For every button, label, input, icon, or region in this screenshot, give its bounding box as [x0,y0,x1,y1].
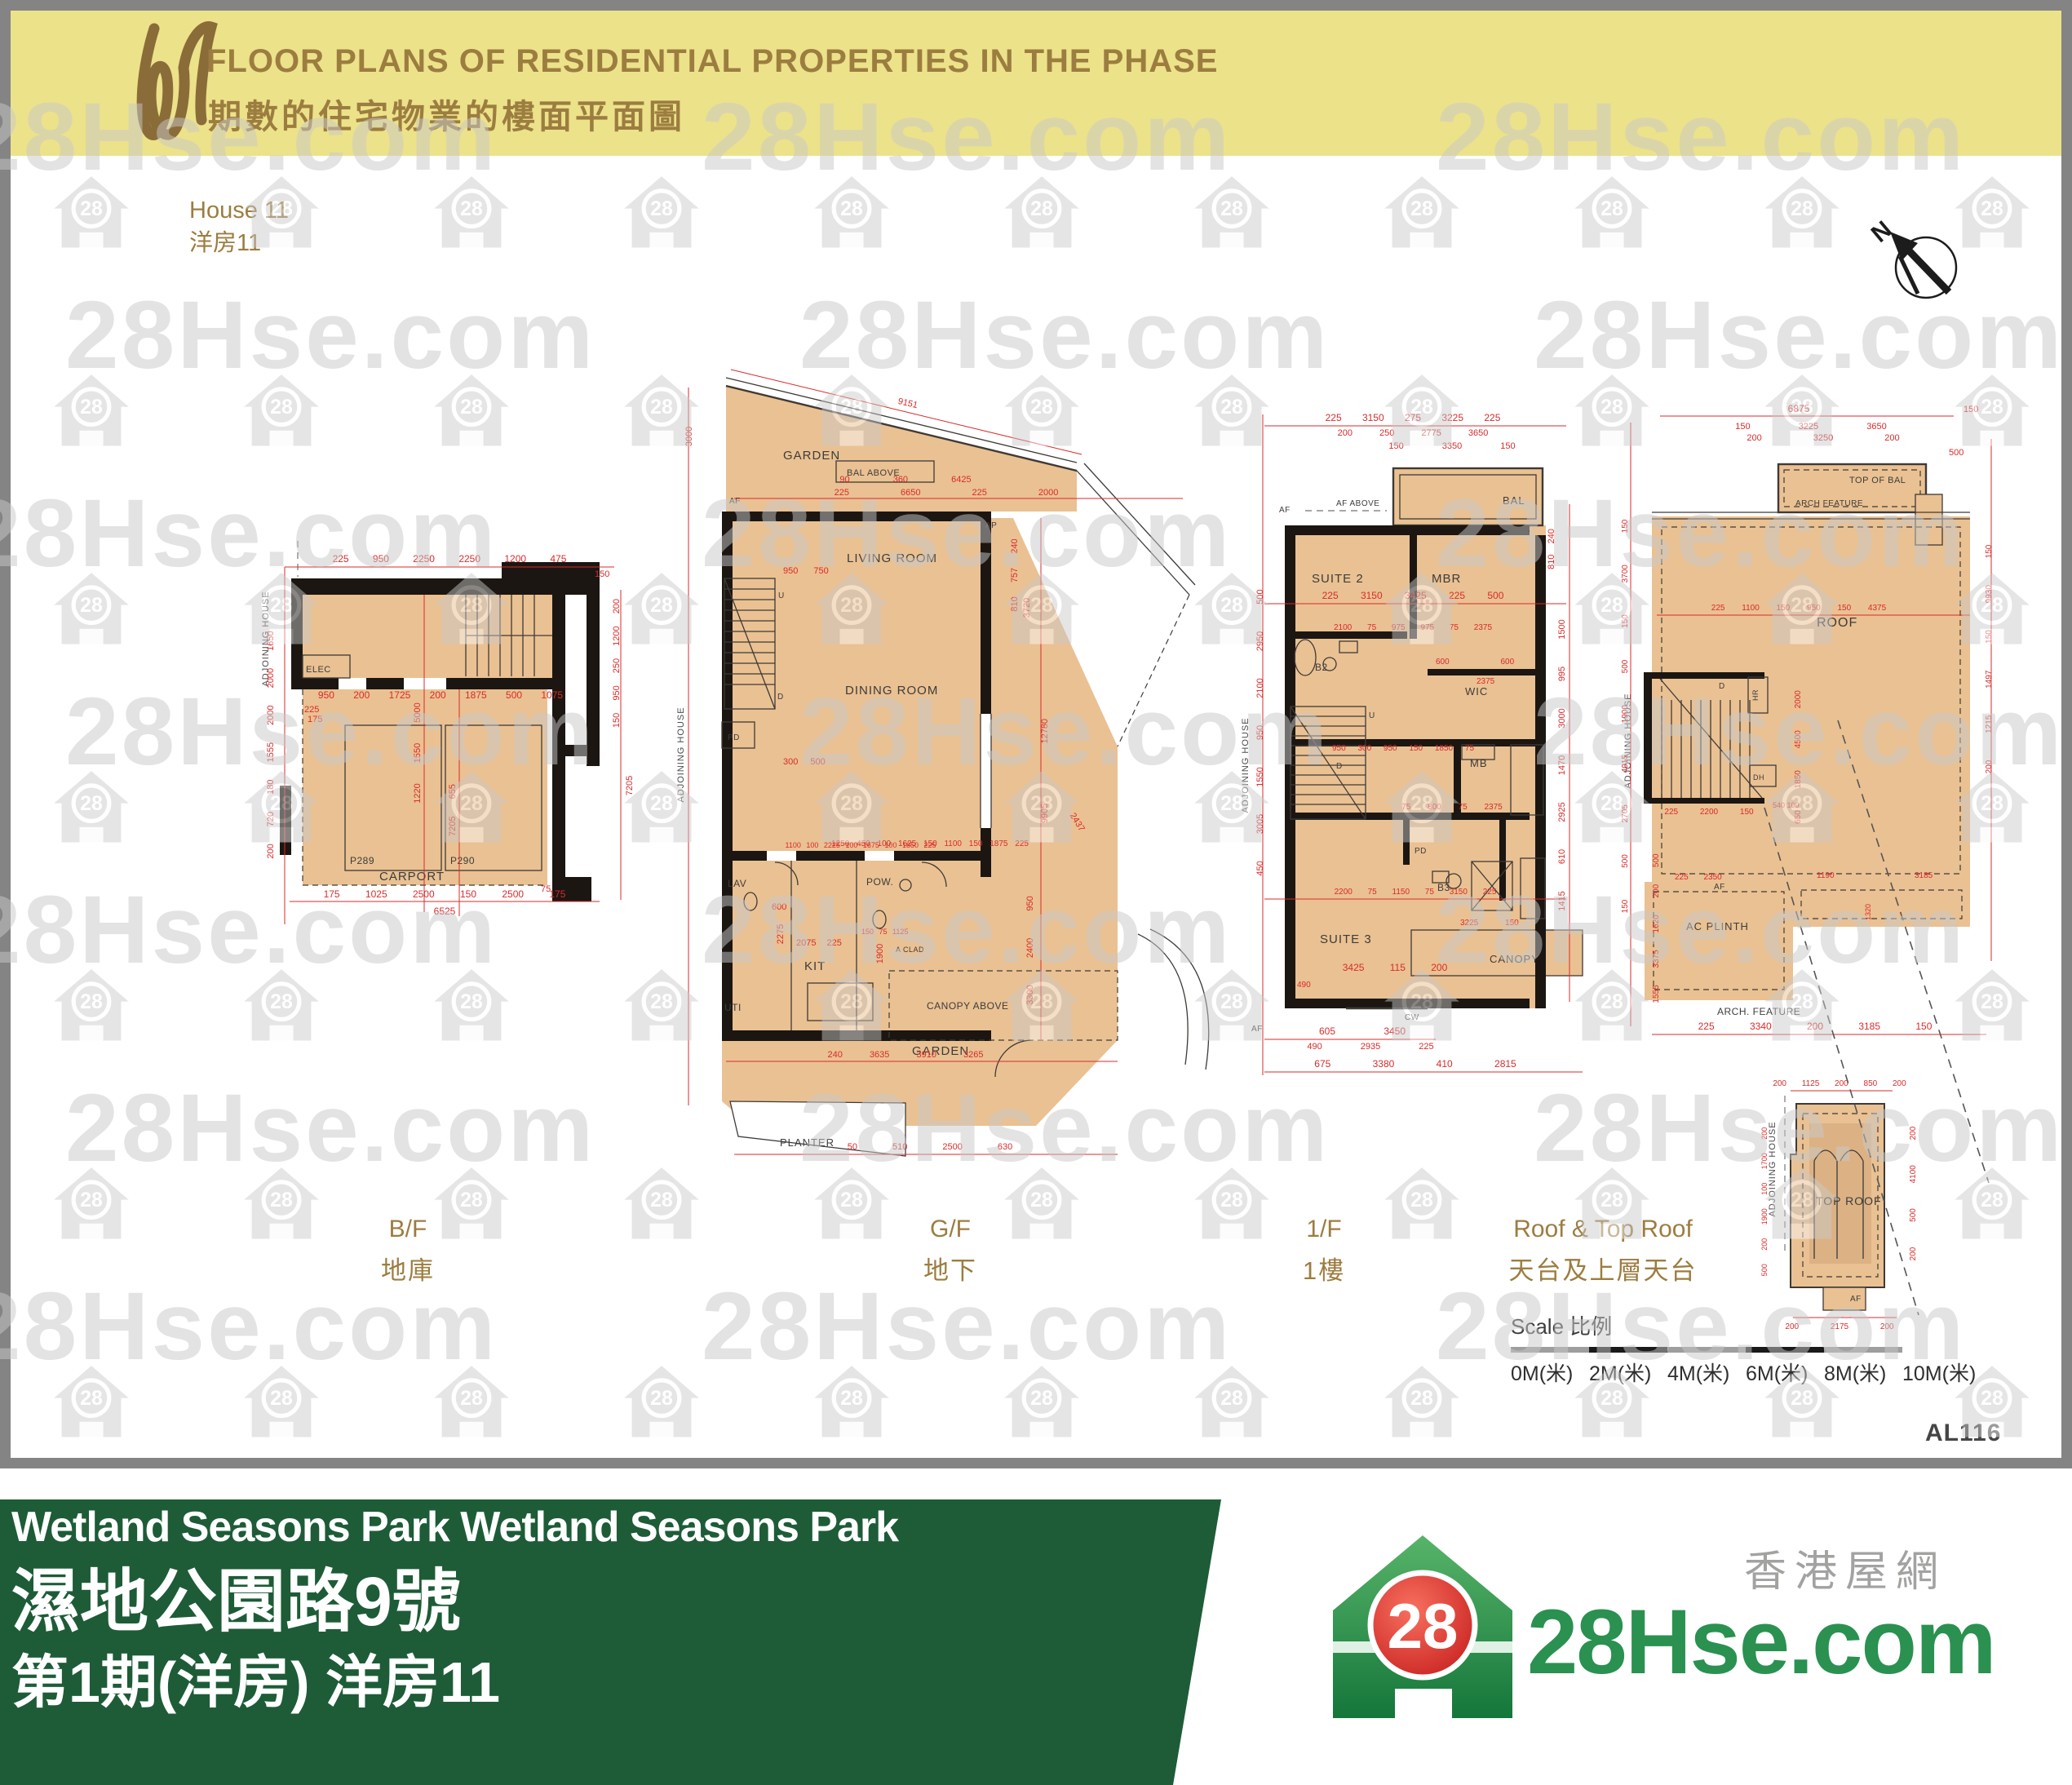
ff-b2: B2 [1315,662,1328,673]
ff-af2: AF [1251,1025,1263,1034]
gf-room-pow: POW. [866,876,893,888]
top-roof-dim-rightv: 200 500 4100 200 [1909,1126,1918,1260]
ff-dim-row10: 675 3380 410 2815 [1314,1058,1516,1070]
ff-dim-490: 490 [1297,981,1311,990]
roof-dim-srow: 225 2200 150 [1664,808,1754,817]
scale-bar-segments [1511,1347,1902,1353]
brand-site-name: 28Hse.com [1527,1589,1995,1694]
gf-dim-kitw2: 2075 225 [796,938,842,948]
gf-dim-row2: 225 6650 225 2000 [835,488,1059,498]
roof-dim-acr4: 1320 [1864,904,1872,920]
gf-room-dining: DINING ROOM [845,684,938,698]
caption-bf-en: B/F [343,1216,473,1243]
caption-gf: G/F 地下 [885,1216,1016,1287]
gf-dim-row1: 90 360 6425 [839,475,971,485]
bf-dim-top: 225 950 2250 2250 1200 475 [333,553,567,565]
top-roof-adjoining-label: ADJOINING HOUSE [1768,1121,1778,1216]
roof-dim-leftv2: 1555 3375 1620 200 500 [1652,853,1661,1003]
gf-room-pd: PD [728,733,740,742]
ff-mb: MB [1470,757,1488,769]
roof-d: D [1719,682,1725,691]
top-roof-dim-top: 200 1125 200 850 200 [1773,1079,1906,1088]
ff-dim-3225: 3225 150 [1460,919,1519,928]
caption-roof: Roof & Top Roof 天台及上層天台 [1485,1216,1721,1287]
scale-bar-ticks: 0M(米) 2M(米) 4M(米) 6M(米) 8M(米) 10M(米) [1511,1358,2017,1385]
gf-dim-600: 600 [772,902,786,912]
ff-u: U [1369,711,1375,720]
gf-dim-1900: 1900 [875,944,885,963]
gf-room-d: D [777,693,784,702]
ff-dim-top2: 200 250 2775 3650 [1338,428,1489,438]
bf-dim-left: 200 720 180 1555 2000 2000 1650 [266,631,276,858]
roof-dim-top1: 6875 [1788,403,1810,414]
bf-dim-innerv: 1220 1550 5000 [413,702,423,804]
north-compass-icon: N [1864,210,1978,317]
brand-site-zh: 香港屋網 [1744,1537,1946,1598]
roof-dh: DH [1753,773,1764,782]
gf-dim-slant: 9151 [897,396,919,410]
gf-dim-kitw3: 150 75 1125 [861,928,908,936]
gf-room-planter: PLANTER [780,1136,835,1149]
roof-dim-acrow: 225 2350 [1675,873,1722,882]
ff-dim-row1: 225 3150 3425 225 500 [1322,590,1504,601]
top-roof-dim-leftv: 500 200 1900 100 1700 200 [1760,1127,1769,1277]
roof-label: ROOF [1817,616,1857,630]
gf-room-uti: UTI [724,1002,742,1013]
gf-dim-leftv: 3000 [684,427,694,446]
gf-dim-rightv4: 3300 2400 950 [1025,896,1035,1004]
scale-tick-4: 4M(米) [1667,1358,1729,1387]
gf-room-kit: KIT [804,959,826,973]
house-label-en: House 11 [189,194,289,227]
roof-dim-top3: 200 3250 200 [1747,433,1899,443]
roof-af: AF [1714,883,1725,892]
house-label: House 11 洋房11 [189,194,289,259]
gf-room-ap: AP [985,521,997,530]
ff-dim-row8: 605 3450 [1319,1025,1406,1037]
caption-roof-en: Roof & Top Roof [1485,1216,1721,1243]
gf-dim-brow: 50 510 2500 630 [848,1142,1013,1152]
roof-dim-500: 500 [1949,448,1964,458]
bf-dim-total: 6525 [434,906,456,917]
gf-adjoining-label: ADJOINING HOUSE [676,706,686,802]
ff-adjoining-label: ADJOINING HOUSE [1241,717,1251,813]
footer-estate-name: Wetland Seasons Park Wetland Seasons Par… [11,1503,898,1552]
gf-dim-inner2: 300 500 [783,757,826,767]
brand-house-badge: 28 [1388,1590,1459,1662]
ff-dim-row4: 950 300 950 150 1850 75 [1332,744,1474,753]
gf-room-canopy-above: CANOPY ABOVE [927,1000,1008,1012]
ff-af-above: AF ABOVE [1336,499,1379,508]
top-roof-label: TOP ROOF [1816,1194,1882,1207]
bf-dim-mid: 950 200 1725 200 1875 500 1075 [318,689,564,701]
floorplan-roof: ADJOINING HOUSE TOP OF BAL ARCH FEATURE … [1611,390,2027,1051]
ff-dim-row7: 3425 115 200 [1343,962,1448,973]
floorplan-bf: ADJOINING HOUSE ELEC P289 P290 CARPORT 2… [257,541,649,949]
roof-dim-rightv: 200 1215 1497 150 9930 150 [1985,544,1994,773]
ff-dim-rightv: 1415 610 2925 1470 3000 995 1500 [1557,619,1567,910]
gf-room-u: U [778,591,785,600]
scale-bar: Scale 比例 0M(米) 2M(米) 4M(米) 6M(米) 8M(米) 1… [1511,1310,2017,1385]
gf-room-lav: LAV [728,878,746,889]
ff-dim-row9: 490 2935 225 [1307,1042,1433,1052]
header-title-zh: 期數的住宅物業的樓面平面圖 [208,89,685,138]
ff-dim-leftv: 450 3005 1550 950 2100 2950 500 [1255,589,1265,875]
bf-dim-innerv2: 7205 655 [448,784,458,836]
roof-dim-srow2: 540 100 [1773,801,1800,809]
brand-house-icon: 28 [1323,1529,1523,1729]
bf-room-elec: ELEC [306,665,331,675]
caption-bf-zh: 地庫 [343,1250,473,1287]
roof-dim-row1: 225 1100 150 950 150 4375 [1711,604,1887,613]
ff-dim-top1: 225 3150 275 3225 225 [1326,412,1501,423]
scale-tick-6: 6M(米) [1746,1358,1808,1387]
ff-dim-row5: 75 800 75 2375 [1401,803,1503,812]
bf-dim-top2: 150 [595,569,609,579]
scale-tick-8: 8M(米) [1824,1358,1886,1387]
bf-dim-75: 75 [541,884,551,894]
bf-dim-right2: 7205 [625,776,635,795]
ff-cw: CW [1405,1013,1419,1022]
ff-d: D [1336,762,1343,771]
gf-room-living: LIVING ROOM [847,551,937,565]
floorplan-1f: ADJOINING HOUSE AF ABOVE AF BAL SUITE 2 … [1240,382,1591,1100]
gf-dim-rightv3: 9905 12780 [1040,719,1050,823]
caption-1f: 1/F 1樓 [1263,1216,1385,1287]
footer-address: 濕地公園路9號 [11,1547,461,1645]
roof-ac-plinth: AC PLINTH [1686,920,1749,932]
ff-pd: PD [1415,847,1427,856]
ff-bal: BAL [1503,494,1525,507]
roof-arch-feature2: ARCH. FEATURE [1717,1006,1800,1017]
ff-dim-row6: 2200 75 1150 75 3150 225 [1335,888,1497,897]
ff-wic: WIC [1465,685,1488,698]
ff-suite3: SUITE 3 [1320,932,1372,946]
ff-dim-row2: 2100 75 975 975 75 2375 [1334,623,1492,632]
gf-dim-inner1: 950 750 [783,566,829,576]
compass-north-label: N [1866,216,1897,248]
header-band: FLOOR PLANS OF RESIDENTIAL PROPERTIES IN… [11,11,2061,156]
scale-bar-label: Scale 比例 [1511,1310,2017,1340]
sheet-code: AL116 [1925,1420,2001,1447]
scale-tick-0: 0M(米) [1511,1358,1573,1387]
gf-dim-grow: 240 3635 3910 3265 [828,1050,984,1060]
bf-dim-right: 150 950 250 1200 200 [612,599,622,728]
bf-dim-innerh: 175 [308,715,322,724]
gf-dim-kitw: 2275 [776,924,786,944]
gf-dim-inner3: 1100 100 2225 100 1675 100 1850 225 [786,841,936,849]
top-roof-af: AF [1850,1295,1862,1304]
caption-1f-en: 1/F [1263,1216,1385,1243]
scale-tick-10: 10M(米) [1902,1358,1976,1387]
bf-room-carport: CARPORT [379,870,445,884]
roof-hr: HR [1751,689,1760,701]
house-label-zh: 洋房11 [189,227,289,259]
roof-dim-150: 150 [1964,405,1978,414]
page: FLOOR PLANS OF RESIDENTIAL PROPERTIES IN… [0,0,2072,1785]
bf-room-p289: P289 [350,855,374,866]
ff-canopy: CANOPY [1490,953,1539,965]
ff-dim-rightv2: 810 240 [1547,529,1556,569]
caption-gf-zh: 地下 [885,1250,1016,1287]
ff-dim-600: 600 600 [1436,658,1515,667]
floorplan-gf: ADJOINING HOUSE GARDEN BAL ABOVE AF AP L… [661,363,1248,1171]
caption-gf-en: G/F [885,1216,1016,1243]
gf-dim-rightv2: 3720 [1022,598,1032,618]
header-title-en: FLOOR PLANS OF RESIDENTIAL PROPERTIES IN… [206,43,1219,80]
roof-top-of-bal: TOP OF BAL [1849,476,1906,485]
scale-tick-2: 2M(米) [1589,1358,1651,1387]
caption-bf: B/F 地庫 [343,1216,473,1287]
roof-dim-leftv: 150 500 2705 4015 1900 500 150 3700 150 [1621,519,1630,913]
roof-dim-top2: 150 3225 3650 [1735,422,1886,432]
roof-dim-bottom: 225 3340 200 3185 150 [1698,1021,1933,1032]
caption-1f-zh: 1樓 [1263,1250,1385,1287]
footer-phase-house: 第1期(洋房) 洋房11 [11,1637,500,1719]
roof-dim-acr2: 1190 [1817,871,1835,880]
gf-dim-rightv1: 810 757 240 [1010,538,1020,611]
roof-dim-acr3: 3185 [1915,871,1933,880]
bf-room-p290: P290 [450,855,475,866]
roof-arch-feature: ARCH FEATURE [1795,499,1863,508]
ff-dim-2375: 2375 [1477,677,1495,686]
ff-mbr: MBR [1432,572,1461,586]
caption-roof-zh: 天台及上層天台 [1485,1250,1721,1287]
gf-room-garden-top: GARDEN [783,449,840,463]
ff-suite2: SUITE 2 [1312,572,1364,586]
gf-room-aclad: A CLAD [896,946,924,954]
ff-af: AF [1279,506,1291,515]
bf-dim-mid2: 225 [304,705,319,715]
bf-dim-bottom: 175 1025 2500 150 2500 175 [324,888,566,900]
ff-dim-top3: 150 3350 150 [1388,441,1515,451]
